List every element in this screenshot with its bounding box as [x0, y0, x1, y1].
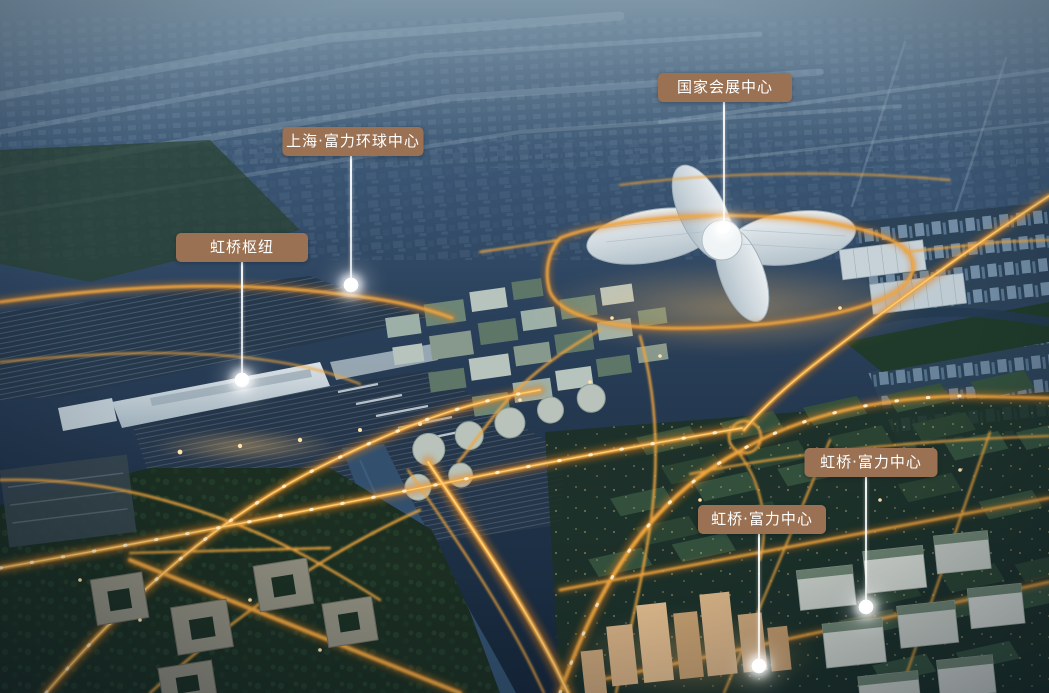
- aerial-map-stage: 国家会展中心 上海·富力环球中心 虹桥枢纽 虹桥·富力中心 虹桥·富力中心: [0, 0, 1049, 693]
- vignette: [0, 0, 1049, 693]
- aerial-city-rendering: [0, 0, 1049, 693]
